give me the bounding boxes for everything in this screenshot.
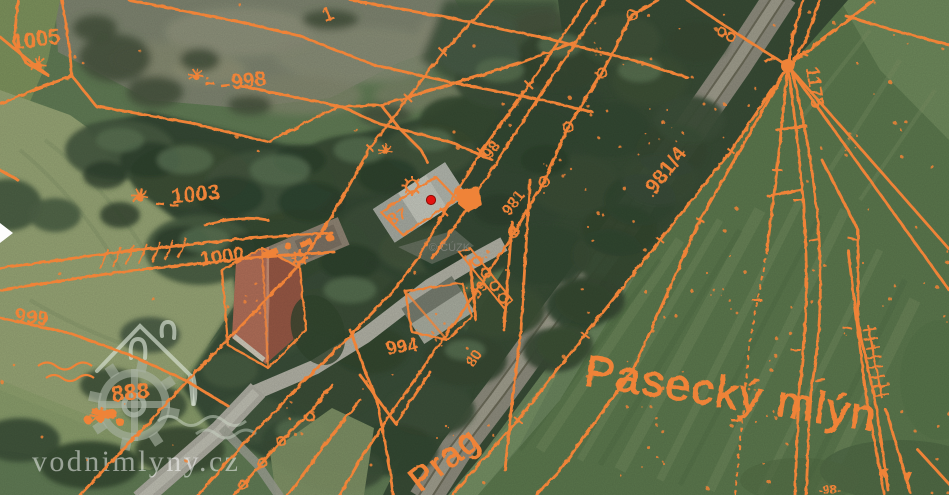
svg-text:999: 999 <box>14 305 49 330</box>
svg-text:© ČÚZK: © ČÚZK <box>429 241 471 254</box>
svg-text:-98-: -98- <box>818 482 841 495</box>
svg-text:1003: 1003 <box>170 179 221 209</box>
svg-text:994: 994 <box>385 335 420 360</box>
svg-text:888: 888 <box>110 377 151 407</box>
svg-text:998: 998 <box>230 67 268 94</box>
svg-text:vodnimlyny.cz: vodnimlyny.cz <box>32 445 240 478</box>
